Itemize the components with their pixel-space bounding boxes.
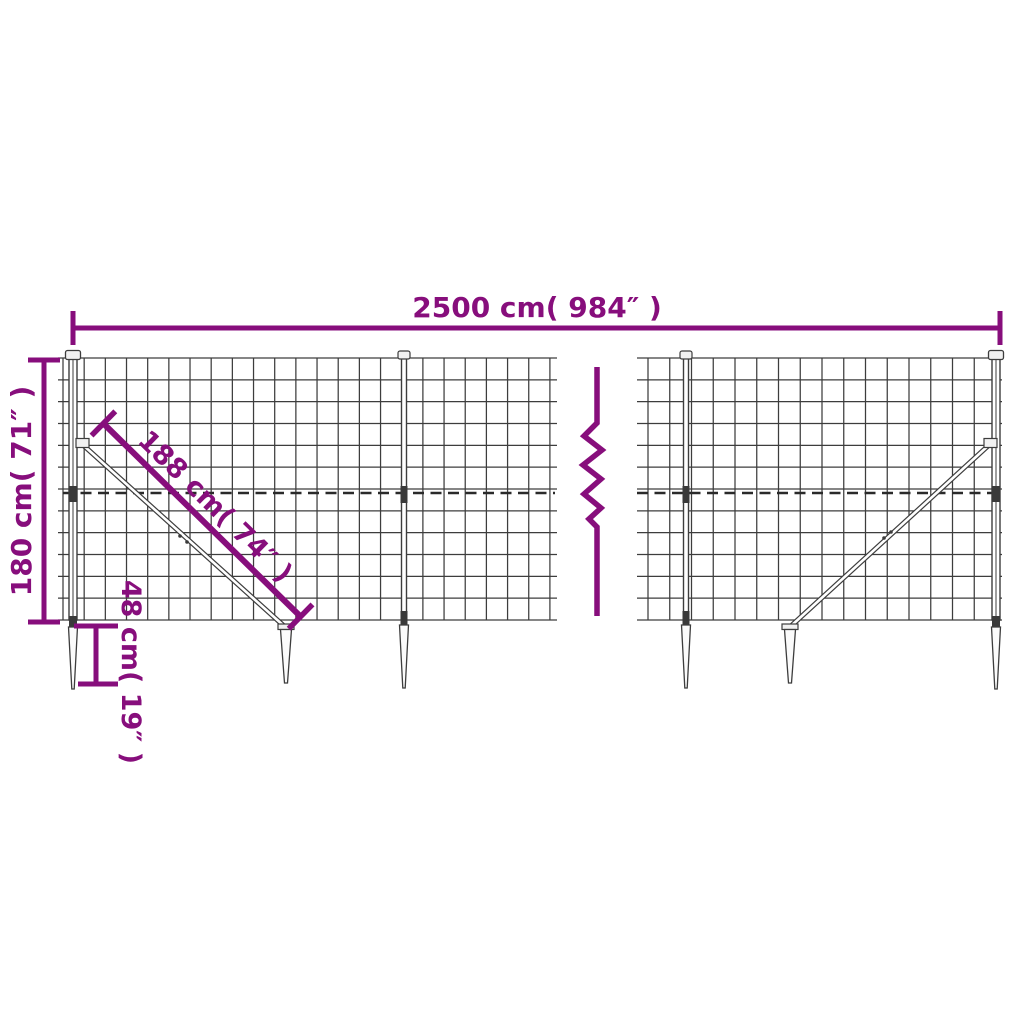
post-connector [683, 486, 690, 503]
post-connector [992, 616, 1000, 627]
ground-spike-left-post [69, 627, 78, 689]
post-cap [66, 351, 81, 360]
ground-spike-right-post [992, 627, 1001, 689]
height-dimension-label: 180 cm( 71″ ) [5, 386, 38, 597]
ground-anchor-spike-right-brace [782, 624, 798, 683]
width-dimension-label: 2500 cm( 984″ ) [412, 291, 662, 324]
brace-bracket [76, 439, 89, 448]
post-connector [401, 611, 408, 625]
brace-bracket [984, 439, 997, 448]
spike-dimension-label: 48 cm( 19″ ) [115, 580, 146, 764]
post-connector [992, 486, 1001, 502]
break-mark-zigzag [583, 367, 602, 616]
ground-spike-mid-left-post [400, 625, 409, 688]
diagram-svg: 2500 cm( 984″ ) 180 cm( 71″ ) 188 cm( 74… [0, 0, 1024, 1024]
post-connector [69, 486, 78, 502]
post-cap [398, 351, 410, 359]
brace-bolt [185, 540, 189, 544]
width-dimension: 2500 cm( 984″ ) [73, 291, 1000, 345]
post-connector [683, 611, 690, 625]
spike-dimension: 48 cm( 19″ ) [74, 580, 146, 764]
ground-spike-mid-right-post [682, 625, 691, 688]
fence-dimension-diagram: 2500 cm( 984″ ) 180 cm( 71″ ) 188 cm( 74… [0, 0, 1024, 1024]
brace-bolt [178, 534, 182, 538]
height-dimension: 180 cm( 71″ ) [5, 360, 60, 622]
post-cap [989, 351, 1004, 360]
ground-anchor-spike-left-brace [278, 624, 294, 683]
brace-bolt [889, 530, 893, 534]
post-connector [401, 486, 408, 503]
post-intermediate-left [398, 351, 410, 625]
brace-bolt [882, 536, 886, 540]
post-cap [680, 351, 692, 359]
post-intermediate-right [680, 351, 692, 625]
